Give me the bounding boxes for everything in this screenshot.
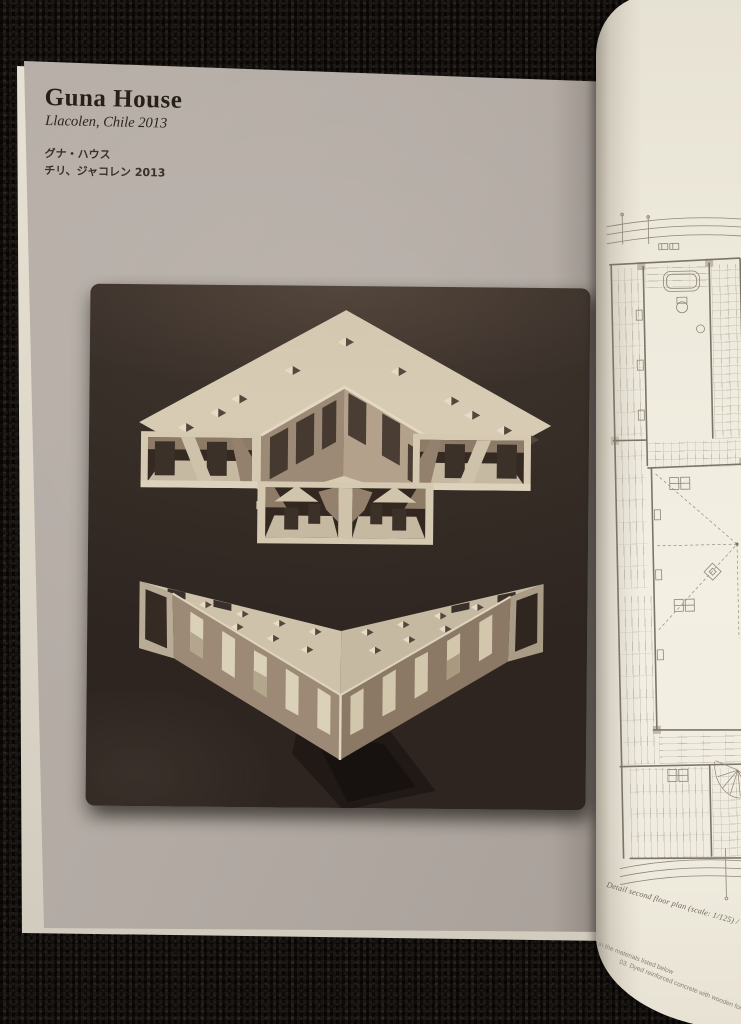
page-subtitle: Llacolen, Chile 2013 [45,113,182,133]
page-subtitle-japanese: チリ、ジャコレン 2013 [44,162,181,182]
right-page: Detail second floor plan (scale: 1/125) … [596,0,741,1024]
artwork-painting [86,284,591,811]
left-wing-rooms [141,431,260,488]
margin-note: in the materials listed below 03. Dyed r… [594,940,741,1024]
upper-volume-painting [138,308,552,546]
page-title: Guna House [44,84,182,115]
title-block: Guna House Llacolen, Chile 2013 グナ・ハウス チ… [43,84,183,182]
painting-figures [86,284,591,811]
painting-shadow [291,716,436,811]
roof-plane [138,308,552,540]
floor-plan-drawing [606,208,741,911]
right-wing-rooms [413,434,532,491]
book-photo: Guna House Llacolen, Chile 2013 グナ・ハウス チ… [0,0,741,1024]
lower-volume-painting [137,580,543,810]
